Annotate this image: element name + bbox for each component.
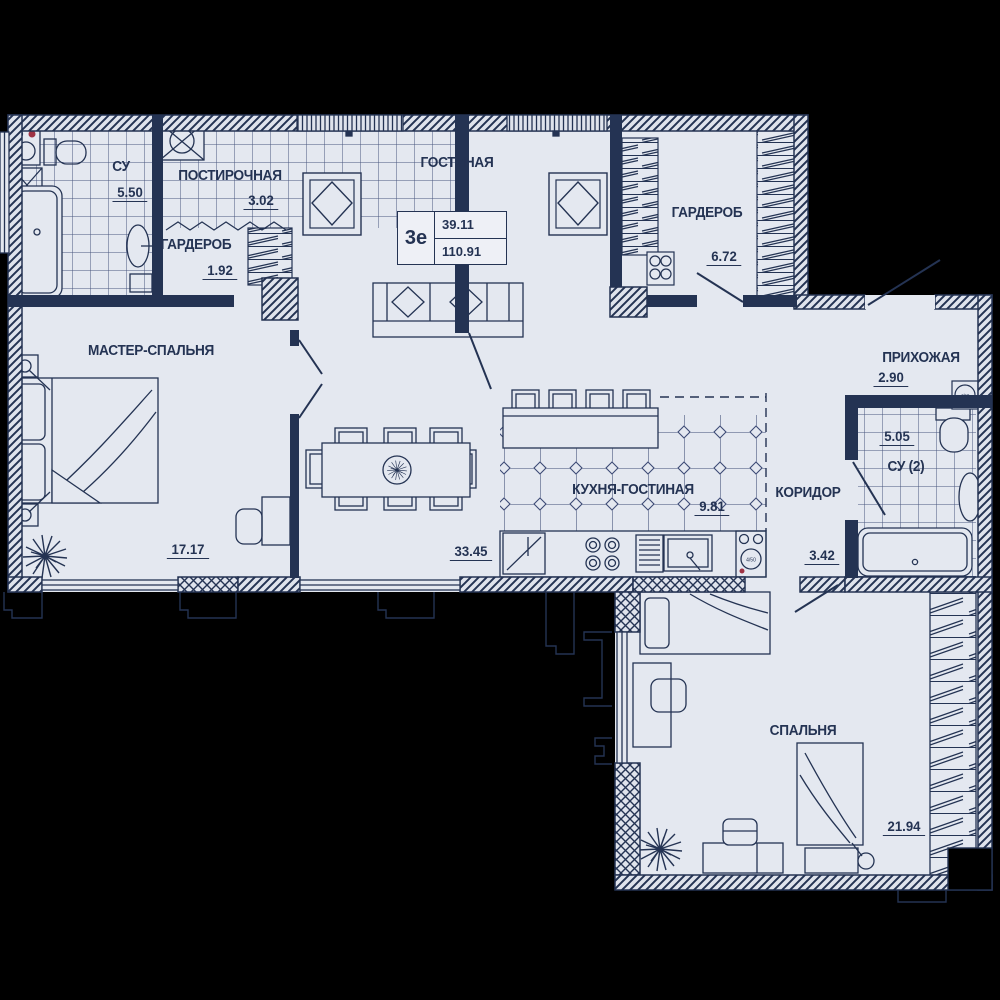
toilet2-icon bbox=[936, 408, 970, 452]
room-label-bath2: СУ (2) bbox=[888, 459, 925, 475]
room-area-living-kitchen: 33.45 bbox=[450, 543, 492, 561]
room-label-laundry: ПОСТИРОЧНАЯ bbox=[178, 168, 282, 184]
entry-door-opening bbox=[865, 295, 935, 309]
room-area-wardrobe-big: 6.72 bbox=[706, 248, 741, 266]
floor-plan-drawing: 4/50 bbox=[0, 0, 1000, 1000]
room-label-master: МАСТЕР-СПАЛЬНЯ bbox=[88, 343, 214, 359]
room-area-corridor: 3.42 bbox=[804, 547, 839, 565]
room-label-bedroom: СПАЛЬНЯ bbox=[770, 723, 837, 739]
room-area-master: 17.17 bbox=[167, 541, 209, 559]
room-label-living: ГОСТИНАЯ bbox=[420, 155, 493, 171]
room-label-wardrobe-small: ГАРДЕРОБ bbox=[161, 237, 232, 253]
building-corner-notch bbox=[948, 848, 992, 890]
water-heater-label: 4/50 bbox=[746, 558, 756, 564]
bathtub2-icon bbox=[858, 528, 972, 576]
room-area-kitchen: 9.81 bbox=[694, 498, 729, 516]
room-area-laundry: 3.02 bbox=[243, 192, 278, 210]
room-area-bath1: 5.50 bbox=[112, 184, 147, 202]
room-label-wardrobe-big: ГАРДЕРОБ bbox=[672, 205, 743, 221]
room-area-bedroom: 21.94 bbox=[883, 818, 925, 836]
floor-plan: 4/50 bbox=[0, 0, 1000, 1000]
stamp-total-area: 110.91 bbox=[435, 239, 506, 265]
room-area-hallway: 2.90 bbox=[873, 369, 908, 387]
bedroom-wardrobe-shelving bbox=[930, 592, 976, 875]
room-area-wardrobe-small: 1.92 bbox=[202, 262, 237, 280]
room-label-hallway: ПРИХОЖАЯ bbox=[882, 350, 960, 366]
stamp-unit-type: 3е bbox=[398, 212, 435, 264]
stamp-living-area: 39.11 bbox=[435, 212, 506, 239]
room-label-kitchen: КУХНЯ-ГОСТИНАЯ bbox=[572, 482, 694, 498]
apartment-stamp: 3е 39.11 110.91 bbox=[397, 211, 507, 265]
room-area-bath2: 5.05 bbox=[879, 428, 914, 446]
room-label-bath1: СУ bbox=[112, 159, 130, 175]
room-label-corridor: КОРИДОР bbox=[775, 485, 840, 501]
